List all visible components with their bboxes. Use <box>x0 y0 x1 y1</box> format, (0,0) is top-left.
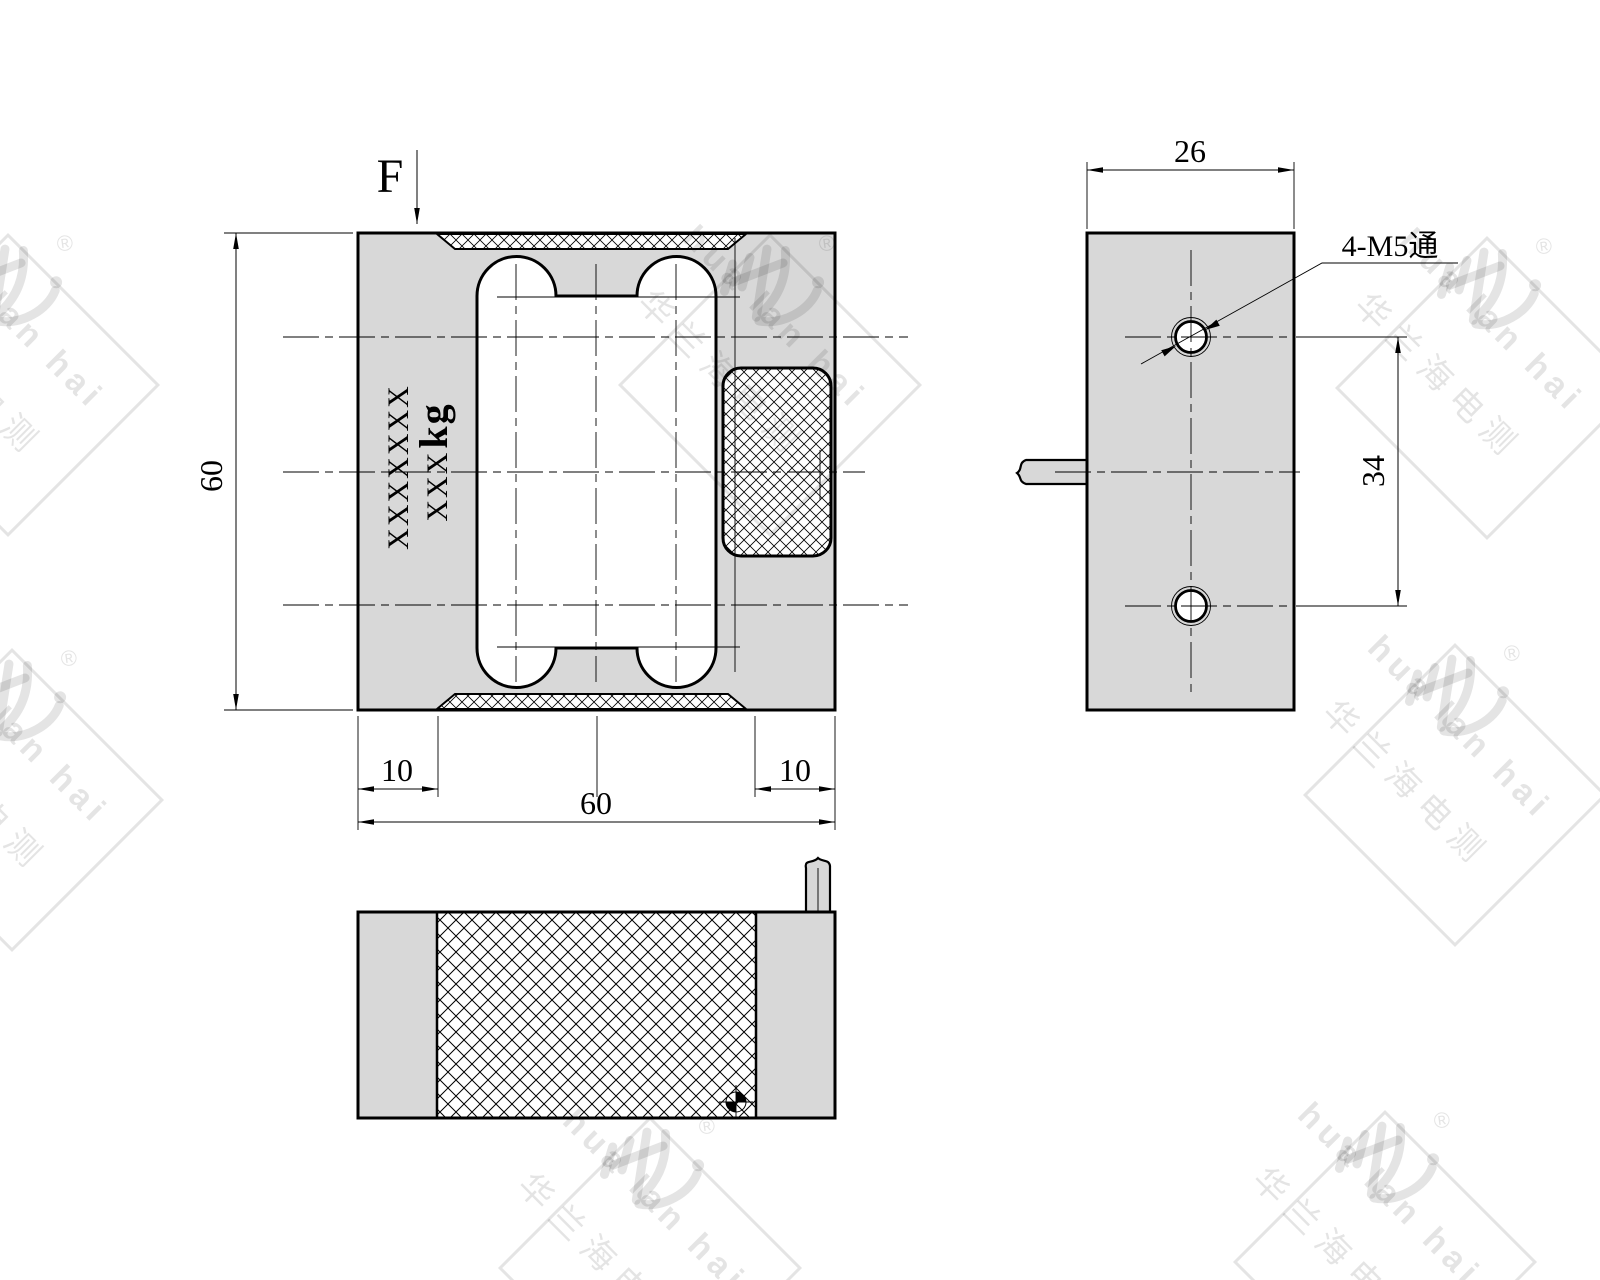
dimension-hole-spacing-34: 34 <box>1296 337 1407 606</box>
dim-text-width-26: 26 <box>1174 133 1206 169</box>
watermark: ® hua lan hai 华兰海电测 <box>500 1101 800 1280</box>
watermark-latin-text: hua lan hai <box>0 633 117 832</box>
watermark: ® hua lan hai 华兰海电测 <box>0 218 158 535</box>
registered-mark: ® <box>1432 1107 1452 1134</box>
gasket-strip-bottom <box>437 694 746 709</box>
registered-mark: ® <box>697 1113 717 1140</box>
side-body <box>1087 233 1294 710</box>
watermark-latin-text: hua lan hai <box>1392 221 1591 420</box>
watermark-latin-text: hua lan hai <box>0 218 113 417</box>
watermark: ® hua lan hai 华兰海电测 <box>0 633 162 950</box>
force-annotation: F <box>377 150 417 224</box>
load-cell-drawing: XXXXXXX XXXkg F 60 10 10 60 <box>0 0 1600 1280</box>
dimension-height-60: 60 <box>193 233 353 710</box>
dim-text-hole-spacing-34: 34 <box>1355 455 1391 487</box>
front-view: XXXXXXX XXXkg <box>283 233 908 710</box>
bottom-view <box>358 858 835 1119</box>
registered-mark: ® <box>59 645 79 672</box>
registered-mark: ® <box>55 230 75 257</box>
watermark-latin-text: hua lan hai <box>1360 628 1559 827</box>
registered-mark: ® <box>1534 233 1554 260</box>
watermark: ® hua lan hai 华兰海电测 <box>1305 628 1600 945</box>
engineering-drawing-page: XXXXXXX XXXkg F 60 10 10 60 <box>0 0 1600 1280</box>
watermark: ® hua lan hai 华兰海电测 <box>1235 1095 1535 1280</box>
dim-text-foot-left: 10 <box>381 752 413 788</box>
dimension-width-26: 26 <box>1087 133 1294 229</box>
dimension-bottom-group: 10 10 60 <box>358 716 835 830</box>
registered-mark: ® <box>817 230 837 257</box>
watermark: ® hua lan hai 华兰海电测 <box>1337 221 1600 538</box>
dim-text-height-60: 60 <box>193 460 229 492</box>
side-view <box>1017 233 1300 710</box>
registered-mark: ® <box>1502 640 1522 667</box>
label-area <box>437 912 756 1118</box>
dim-text-width-60: 60 <box>580 785 612 821</box>
dim-text-foot-right: 10 <box>779 752 811 788</box>
force-label: F <box>377 150 404 203</box>
